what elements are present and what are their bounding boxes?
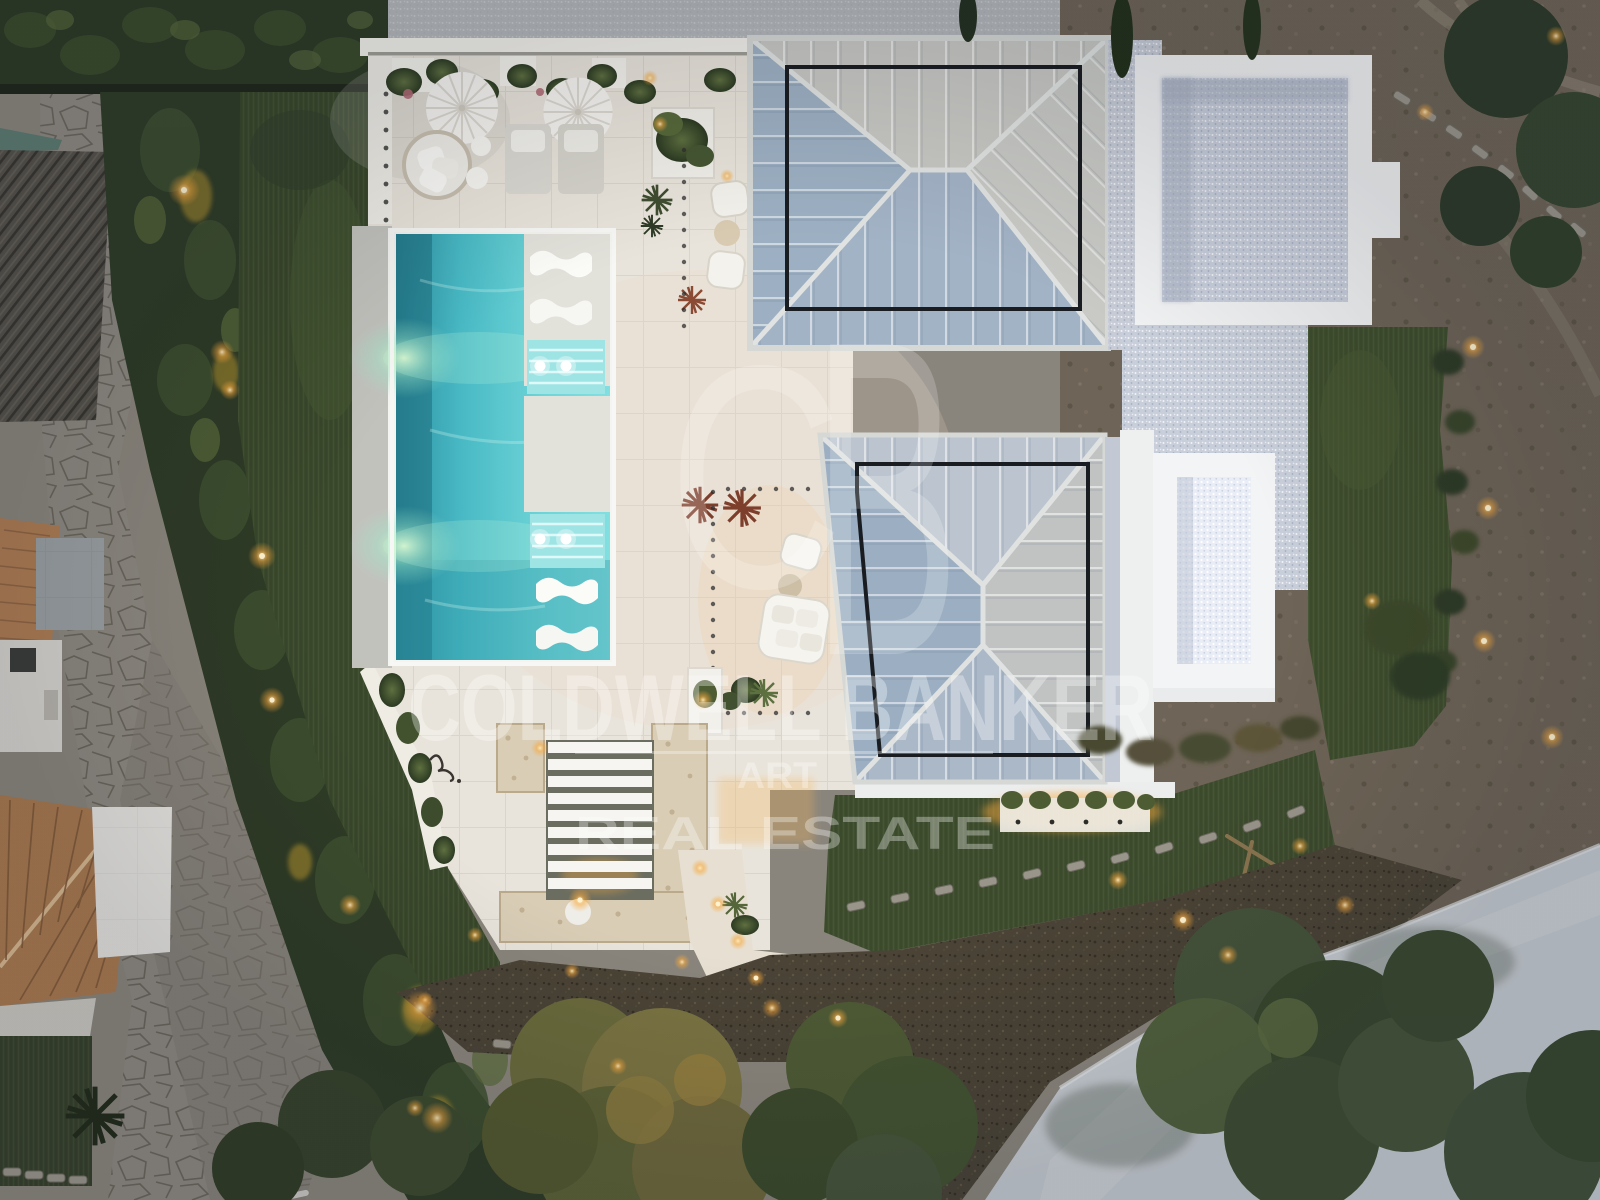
scene-svg: C B COLDWELL BANKER ART REAL ESTATE — [0, 0, 1600, 1200]
watermark-wordmark: COLDWELL BANKER — [408, 655, 1153, 760]
watermark-subtitle-art: ART — [737, 755, 817, 796]
watermark-divider — [575, 751, 993, 754]
watermark-subtitle-realestate: REAL ESTATE — [575, 807, 995, 859]
aerial-photo: C B COLDWELL BANKER ART REAL ESTATE — [0, 0, 1600, 1200]
